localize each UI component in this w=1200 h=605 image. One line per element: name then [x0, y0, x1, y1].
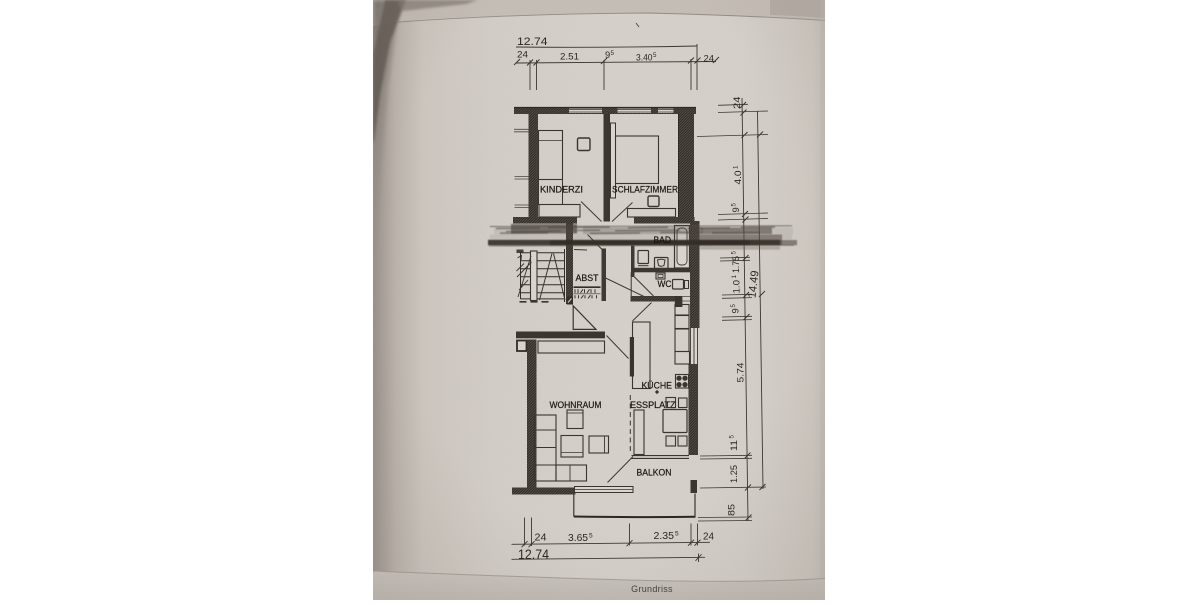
svg-text:KÜCHE: KÜCHE	[642, 381, 673, 391]
svg-text:5: 5	[589, 533, 593, 540]
svg-text:12.74: 12.74	[518, 547, 549, 562]
svg-text:5: 5	[731, 203, 738, 207]
svg-text:24: 24	[535, 533, 547, 544]
svg-text:1.25: 1.25	[728, 465, 739, 483]
svg-text:3.40: 3.40	[636, 52, 653, 63]
svg-text:5: 5	[730, 304, 737, 308]
svg-text:9: 9	[730, 207, 741, 212]
svg-text:11: 11	[728, 440, 739, 451]
svg-text:9: 9	[605, 49, 610, 60]
svg-text:WC: WC	[658, 279, 672, 289]
svg-text:ABST: ABST	[576, 273, 599, 283]
svg-text:12.74: 12.74	[517, 36, 548, 48]
svg-text:ESSPLATZ: ESSPLATZ	[630, 400, 676, 410]
svg-text:5: 5	[729, 435, 736, 439]
svg-text:1: 1	[731, 275, 738, 279]
svg-text:5: 5	[731, 251, 738, 255]
svg-text:3.65: 3.65	[568, 533, 588, 544]
svg-text:2.51: 2.51	[560, 51, 579, 62]
svg-text:BAD: BAD	[654, 235, 672, 245]
svg-text:24: 24	[704, 53, 715, 64]
svg-text:5: 5	[611, 50, 615, 57]
svg-text:KINDERZI: KINDERZI	[540, 184, 583, 194]
svg-text:24: 24	[703, 532, 714, 543]
svg-text:WOHNRAUM: WOHNRAUM	[550, 400, 602, 410]
svg-text:5.74: 5.74	[735, 363, 746, 383]
svg-text:2.35: 2.35	[654, 531, 675, 542]
svg-text:4.0: 4.0	[732, 171, 743, 185]
svg-text:1: 1	[733, 165, 740, 169]
svg-text:BALKON: BALKON	[637, 468, 672, 478]
svg-text:5: 5	[675, 531, 679, 538]
svg-text:5: 5	[653, 52, 657, 59]
svg-text:1.75: 1.75	[730, 256, 741, 273]
svg-text:24: 24	[517, 49, 528, 60]
svg-text:24: 24	[731, 97, 742, 110]
svg-text:1.0: 1.0	[731, 280, 742, 294]
svg-text:9: 9	[730, 308, 741, 313]
svg-text:85: 85	[726, 504, 737, 516]
svg-text:SCHLAFZIMMER: SCHLAFZIMMER	[612, 184, 678, 194]
